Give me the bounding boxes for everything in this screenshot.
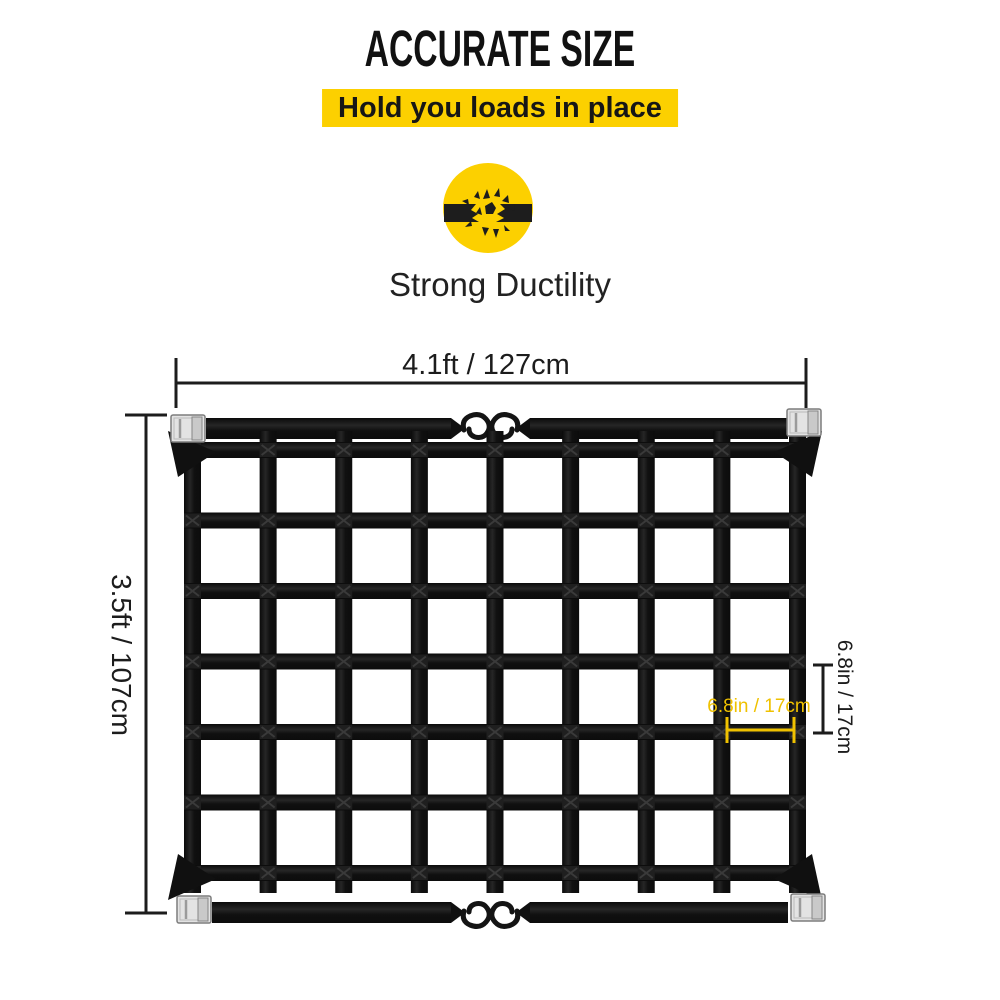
height-dimension: 3.5ft / 107cm [106, 415, 167, 913]
cargo-net-figure: 4.1ft / 127cm 3.5ft / 107cm 6.8in / 17cm… [0, 0, 1000, 1000]
width-dimension: 4.1ft / 127cm [176, 349, 806, 408]
infographic: ACCURATE SIZE Hold you loads in place St… [0, 0, 1000, 1000]
cam-buckle [787, 409, 821, 436]
s-hook [492, 904, 518, 927]
cam-buckle [177, 896, 211, 923]
width-dimension-label: 4.1ft / 127cm [402, 349, 570, 381]
cell-height-dimension: 6.8in / 17cm [813, 640, 856, 754]
cell-height-dimension-label: 6.8in / 17cm [833, 640, 856, 754]
cam-buckle [791, 894, 825, 921]
s-hook [463, 904, 489, 927]
height-dimension-label: 3.5ft / 107cm [106, 574, 137, 736]
cargo-net [168, 409, 825, 926]
s-hook [463, 415, 489, 438]
cell-width-dimension-label: 6.8in / 17cm [707, 696, 811, 717]
cam-buckle [171, 415, 205, 442]
